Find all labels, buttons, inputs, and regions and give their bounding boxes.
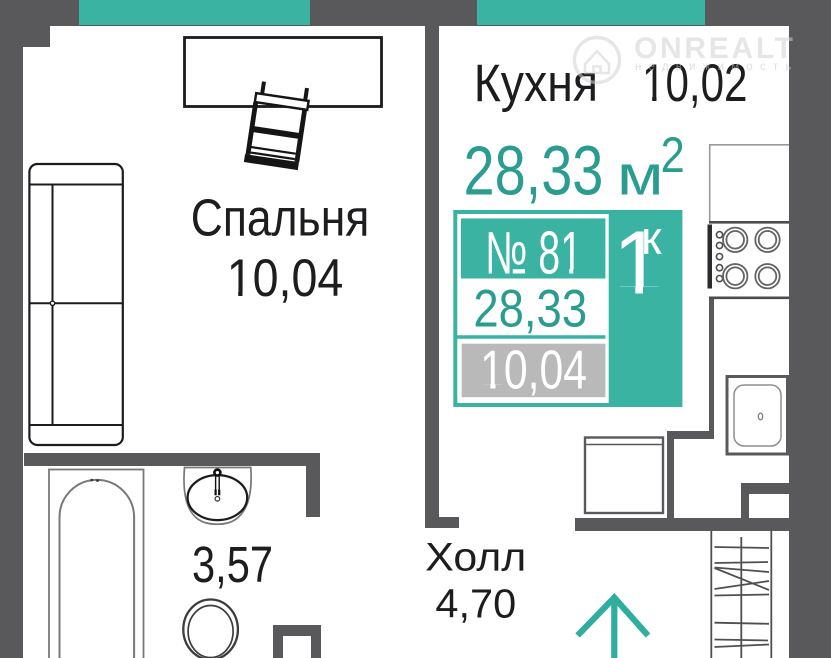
svg-text:м: м — [617, 144, 664, 208]
svg-text:2: 2 — [661, 127, 685, 183]
svg-text:28,33: 28,33 — [464, 132, 604, 210]
svg-text:Кухня: Кухня — [474, 54, 598, 113]
svg-text:недвижимость: недвижимость — [635, 61, 799, 73]
svg-text:Холл: Холл — [425, 536, 526, 580]
svg-text:3,57: 3,57 — [192, 536, 273, 593]
svg-text:Спальня: Спальня — [191, 189, 369, 247]
svg-text:№ 81: № 81 — [485, 220, 582, 287]
svg-text:4,70: 4,70 — [435, 581, 516, 627]
svg-text:28,33: 28,33 — [473, 280, 587, 339]
svg-text:к: к — [641, 211, 662, 264]
svg-text:10,04: 10,04 — [480, 339, 587, 401]
svg-text:10,04: 10,04 — [227, 249, 344, 308]
